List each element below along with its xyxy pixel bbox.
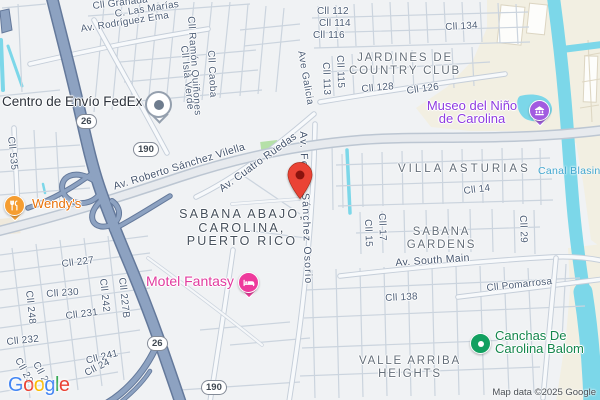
- museo-poi[interactable]: [529, 100, 551, 130]
- area-label-jardines: JARDINES DE COUNTRY CLUB: [345, 52, 465, 77]
- area-label-line: VALLE ARRIBA: [350, 355, 470, 368]
- museo-label[interactable]: Museo del Niño de Carolina: [418, 100, 526, 125]
- area-label-sabana-abajo: SABANA ABAJO, CAROLINA, PUERTO RICO: [172, 208, 312, 249]
- route-badge-26: 26: [147, 336, 168, 351]
- area-label-line: PUERTO RICO: [172, 235, 312, 249]
- google-logo-letter: G: [8, 374, 23, 397]
- area-label-line: HEIGHTS: [350, 368, 470, 381]
- fedex-place-marker[interactable]: [145, 91, 172, 125]
- google-logo-letter: o: [23, 374, 34, 397]
- street-label: Cll 134: [445, 20, 478, 33]
- area-label-line: SABANA ABAJO,: [172, 208, 312, 222]
- google-logo-letter: e: [59, 374, 70, 397]
- street-label: Cll 15: [362, 219, 374, 247]
- area-label-sabana-gardens: SABANA GARDENS: [384, 226, 499, 251]
- poi-label-line: de Carolina: [418, 113, 526, 126]
- area-label-line: COUNTRY CLUB: [345, 65, 465, 78]
- motel-fantasy-label[interactable]: Motel Fantasy: [146, 275, 234, 288]
- lodging-bed-icon: [238, 272, 259, 293]
- fedex-label[interactable]: Centro de Envío FedEx: [2, 96, 142, 109]
- street-label: Cll 29: [517, 215, 529, 243]
- poi-label-line: Carolina Balom: [495, 343, 584, 356]
- map-canvas[interactable]: Cll Granada C. Las Marías Av. Rodríguez …: [0, 0, 600, 400]
- wendys-label[interactable]: Wendy's: [32, 198, 81, 211]
- area-label-valle-arriba: VALLE ARRIBA HEIGHTS: [350, 355, 470, 380]
- street-label: Cll 138: [385, 291, 418, 304]
- motel-fantasy-poi[interactable]: [238, 272, 260, 302]
- route-badge-26: 26: [76, 114, 97, 129]
- canchas-label[interactable]: Canchas De Carolina Balom: [495, 330, 584, 355]
- water-label-canal-blasina: Canal Blasina: [538, 165, 600, 177]
- restaurant-icon: [4, 195, 25, 216]
- google-logo[interactable]: Google: [8, 374, 70, 397]
- google-logo-letter: o: [34, 374, 45, 397]
- canchas-poi[interactable]: [470, 333, 492, 363]
- street-label: Cll 113: [320, 62, 332, 96]
- area-label-line: GARDENS: [384, 239, 499, 252]
- museum-icon: [529, 100, 550, 121]
- place-dot-icon: [145, 91, 172, 118]
- street-label: Cll 112: [317, 6, 349, 17]
- area-label-line: CAROLINA,: [172, 222, 312, 236]
- destination-pin[interactable]: [287, 162, 313, 200]
- google-logo-letter: g: [44, 374, 55, 397]
- area-label-line: SABANA: [384, 226, 499, 239]
- route-badge-190: 190: [133, 142, 159, 157]
- street-label: Cll 116: [313, 30, 345, 41]
- route-badge-190: 190: [201, 380, 227, 395]
- area-label-line: JARDINES DE: [345, 52, 465, 65]
- area-label-villa-asturias: VILLA ASTURIAS: [398, 163, 531, 176]
- wendys-poi[interactable]: [4, 195, 26, 225]
- map-data-attribution: Map data ©2025 Google: [492, 387, 596, 398]
- street-label: Cll 114: [319, 18, 351, 29]
- street-label: Cll 230: [46, 287, 79, 300]
- place-dot-icon: [470, 333, 491, 354]
